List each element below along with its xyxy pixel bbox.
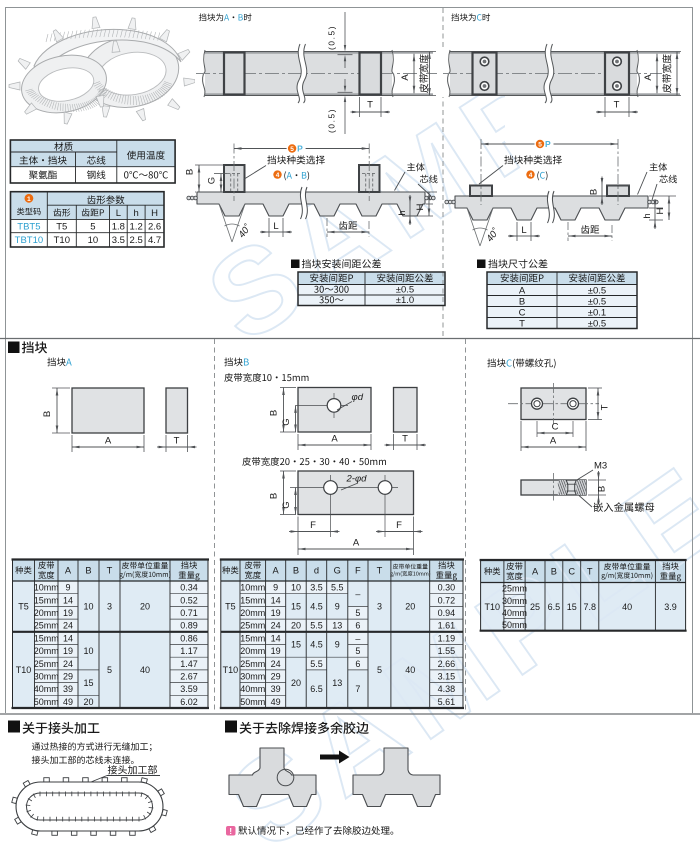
svg-text:G: G	[281, 501, 292, 508]
svg-text:15: 15	[291, 602, 301, 612]
svg-text:4.7: 4.7	[148, 235, 161, 246]
svg-text:6.02: 6.02	[180, 697, 198, 707]
svg-text:6.5: 6.5	[310, 684, 323, 694]
svg-text:G: G	[281, 418, 292, 425]
svg-text:B: B	[185, 169, 196, 175]
svg-text:24: 24	[271, 659, 281, 669]
svg-text:B: B	[85, 566, 91, 576]
svg-text:±1.0: ±1.0	[396, 295, 414, 306]
svg-text:10: 10	[83, 646, 93, 656]
svg-text:F: F	[310, 520, 316, 531]
svg-text:L: L	[273, 221, 278, 232]
svg-text:19: 19	[63, 646, 73, 656]
svg-text:10: 10	[83, 602, 93, 612]
svg-text:H: H	[415, 203, 426, 210]
svg-text:T: T	[377, 566, 383, 576]
svg-text:14: 14	[63, 595, 73, 605]
svg-text:T5: T5	[18, 602, 29, 612]
svg-text:A: A	[273, 566, 280, 576]
svg-text:15: 15	[567, 602, 577, 612]
svg-text:T10: T10	[484, 602, 500, 612]
svg-text:14: 14	[271, 595, 281, 605]
svg-text:10mm: 10mm	[34, 583, 59, 593]
svg-text:25mm: 25mm	[502, 584, 527, 594]
svg-text:±0.5: ±0.5	[588, 296, 606, 307]
svg-text:15mm: 15mm	[34, 595, 59, 605]
svg-text:F: F	[396, 520, 402, 531]
svg-text:L: L	[521, 225, 526, 236]
svg-text:1.55: 1.55	[438, 646, 456, 656]
svg-text:0.89: 0.89	[180, 621, 198, 631]
svg-text:4.5: 4.5	[310, 602, 323, 612]
svg-text:1.47: 1.47	[180, 659, 198, 669]
svg-text:30mm: 30mm	[502, 596, 527, 606]
svg-text:A: A	[400, 74, 411, 81]
svg-text:A: A	[331, 434, 338, 445]
svg-text:6: 6	[355, 659, 360, 669]
svg-text:7: 7	[355, 684, 360, 694]
svg-text:2.5: 2.5	[130, 235, 143, 246]
svg-text:4.5: 4.5	[310, 640, 323, 650]
svg-text:A: A	[532, 567, 539, 577]
svg-text:L: L	[116, 208, 121, 219]
svg-text:0.86: 0.86	[180, 633, 198, 643]
svg-text:7.8: 7.8	[583, 602, 596, 612]
svg-text:1.2: 1.2	[130, 221, 143, 232]
svg-text:39: 39	[63, 684, 73, 694]
svg-text:3.15: 3.15	[438, 671, 456, 681]
svg-text:20: 20	[291, 621, 301, 631]
svg-text:20mm: 20mm	[34, 608, 59, 618]
svg-text:40mm: 40mm	[240, 684, 265, 694]
svg-text:15: 15	[83, 678, 93, 688]
svg-text:5: 5	[90, 221, 95, 232]
svg-text:5: 5	[355, 608, 360, 618]
svg-text:10: 10	[88, 235, 99, 246]
svg-text:T: T	[614, 100, 620, 111]
svg-text:(0.5): (0.5)	[327, 25, 337, 50]
svg-text:1.17: 1.17	[180, 646, 198, 656]
svg-text:C: C	[568, 567, 575, 577]
svg-text:B: B	[589, 189, 600, 195]
svg-text:25mm: 25mm	[240, 621, 265, 631]
svg-text:5.61: 5.61	[438, 697, 456, 707]
svg-text:15mm: 15mm	[34, 633, 59, 643]
svg-text:49: 49	[63, 697, 73, 707]
svg-text:0.94: 0.94	[438, 608, 456, 618]
svg-text:30mm: 30mm	[34, 671, 59, 681]
svg-text:4: 4	[276, 172, 280, 179]
svg-text:40: 40	[622, 602, 632, 612]
svg-text:24: 24	[63, 621, 73, 631]
svg-text:G: G	[207, 177, 218, 184]
svg-text:1.61: 1.61	[438, 621, 456, 631]
svg-text:T10: T10	[223, 665, 239, 675]
svg-text:0.30: 0.30	[438, 583, 456, 593]
svg-text:T: T	[367, 100, 373, 111]
svg-text:15: 15	[291, 640, 301, 650]
svg-text:2.67: 2.67	[180, 671, 198, 681]
svg-text:1.19: 1.19	[438, 633, 456, 643]
svg-text:25mm: 25mm	[34, 659, 59, 669]
svg-text:30mm: 30mm	[240, 671, 265, 681]
svg-text:9: 9	[65, 583, 70, 593]
svg-text:C: C	[552, 422, 559, 433]
svg-text:15mm: 15mm	[240, 595, 265, 605]
svg-text:h: h	[642, 213, 653, 218]
svg-text:±0.5: ±0.5	[396, 285, 414, 296]
svg-text:TBT10: TBT10	[15, 235, 44, 246]
svg-text:0.52: 0.52	[180, 595, 198, 605]
svg-text:40mm: 40mm	[34, 684, 59, 694]
svg-text:H: H	[655, 207, 666, 214]
svg-text:20: 20	[291, 678, 301, 688]
svg-text:h: h	[134, 208, 139, 219]
svg-text:5.5: 5.5	[310, 621, 323, 631]
svg-text:49: 49	[271, 697, 281, 707]
svg-text:B: B	[519, 296, 525, 307]
svg-text:A: A	[643, 74, 654, 81]
svg-text:3: 3	[107, 602, 112, 612]
svg-text:B: B	[551, 567, 557, 577]
svg-text:T: T	[600, 404, 611, 410]
svg-text:T10: T10	[54, 235, 70, 246]
svg-text:C: C	[519, 307, 526, 318]
svg-text:9: 9	[335, 602, 340, 612]
svg-text:3.59: 3.59	[180, 684, 198, 694]
svg-text:3: 3	[377, 602, 382, 612]
svg-text:T: T	[519, 318, 525, 329]
svg-text:T: T	[174, 436, 180, 447]
svg-text:P: P	[297, 144, 303, 154]
svg-text:9: 9	[335, 640, 340, 650]
svg-text:h: h	[397, 210, 408, 215]
svg-text:T: T	[587, 567, 593, 577]
svg-text:5.5: 5.5	[310, 659, 323, 669]
svg-text:d: d	[314, 566, 319, 576]
svg-text:A: A	[550, 436, 557, 447]
svg-text:39: 39	[271, 684, 281, 694]
svg-text:F: F	[355, 566, 361, 576]
svg-text:9: 9	[273, 583, 278, 593]
svg-text:0.71: 0.71	[180, 608, 198, 618]
svg-text:–: –	[355, 589, 360, 599]
svg-text:20: 20	[140, 602, 150, 612]
svg-text:3.5: 3.5	[112, 235, 125, 246]
svg-text:B: B	[269, 410, 280, 416]
svg-text:1: 1	[27, 196, 31, 203]
svg-text:M3: M3	[594, 461, 607, 472]
svg-text:4: 4	[529, 172, 533, 179]
svg-text:±0.5: ±0.5	[588, 285, 606, 296]
svg-text:20mm: 20mm	[240, 646, 265, 656]
svg-text:T5: T5	[56, 221, 67, 232]
svg-text:5: 5	[107, 665, 112, 675]
svg-text:5: 5	[290, 146, 294, 153]
svg-text:B: B	[597, 486, 608, 492]
svg-text:25mm: 25mm	[240, 659, 265, 669]
svg-text:24: 24	[63, 659, 73, 669]
svg-text:3.5: 3.5	[310, 583, 323, 593]
svg-text:2.6: 2.6	[148, 221, 161, 232]
svg-text:T: T	[107, 566, 113, 576]
svg-text:T5: T5	[225, 602, 236, 612]
svg-text:6: 6	[355, 621, 360, 631]
svg-text:5: 5	[355, 646, 360, 656]
svg-text:29: 29	[63, 671, 73, 681]
svg-text:A: A	[65, 566, 72, 576]
svg-text:6.5: 6.5	[548, 602, 561, 612]
svg-text:1.8: 1.8	[112, 221, 125, 232]
svg-text:0.72: 0.72	[438, 595, 456, 605]
svg-text:T: T	[402, 434, 408, 445]
svg-text:A: A	[353, 538, 360, 549]
svg-text:5: 5	[538, 141, 542, 148]
svg-text:φd: φd	[352, 392, 364, 403]
svg-text:10: 10	[291, 583, 301, 593]
svg-text:40mm: 40mm	[502, 608, 527, 618]
svg-text:19: 19	[63, 608, 73, 618]
svg-text:–: –	[355, 633, 360, 643]
svg-text:2-φd: 2-φd	[346, 474, 368, 485]
svg-text:20mm: 20mm	[240, 608, 265, 618]
svg-text:5.5: 5.5	[331, 583, 344, 593]
svg-text:14: 14	[271, 633, 281, 643]
svg-text:G: G	[334, 566, 341, 576]
svg-text:15mm: 15mm	[240, 633, 265, 643]
svg-text:(0.5): (0.5)	[327, 108, 337, 133]
svg-text:40: 40	[140, 665, 150, 675]
svg-text:50mm: 50mm	[502, 620, 527, 630]
svg-text:29: 29	[271, 671, 281, 681]
svg-text:24: 24	[271, 621, 281, 631]
svg-text:50mm: 50mm	[34, 697, 59, 707]
svg-text:!: !	[229, 826, 232, 836]
svg-text:B: B	[269, 493, 280, 499]
svg-text:40: 40	[405, 665, 415, 675]
svg-text:4.38: 4.38	[438, 684, 456, 694]
svg-text:±0.1: ±0.1	[588, 307, 606, 318]
svg-text:19: 19	[271, 646, 281, 656]
svg-text:14: 14	[63, 633, 73, 643]
svg-text:20mm: 20mm	[34, 646, 59, 656]
svg-text:A: A	[105, 436, 112, 447]
svg-text:5: 5	[377, 665, 382, 675]
svg-text:±0.5: ±0.5	[588, 318, 606, 329]
svg-text:25: 25	[530, 602, 540, 612]
svg-text:0.34: 0.34	[180, 583, 198, 593]
svg-text:20: 20	[405, 602, 415, 612]
svg-text:10mm: 10mm	[240, 583, 265, 593]
svg-text:B: B	[293, 566, 299, 576]
svg-text:2.66: 2.66	[438, 659, 456, 669]
svg-text:TBT5: TBT5	[17, 221, 40, 232]
svg-text:13: 13	[332, 621, 342, 631]
svg-text:25mm: 25mm	[34, 621, 59, 631]
svg-text:20: 20	[83, 697, 93, 707]
svg-text:A: A	[519, 285, 526, 296]
svg-text:3.9: 3.9	[664, 602, 677, 612]
svg-text:T10: T10	[16, 665, 32, 675]
svg-text:H: H	[151, 208, 158, 219]
svg-text:19: 19	[271, 608, 281, 618]
svg-text:P: P	[545, 139, 551, 149]
svg-text:50mm: 50mm	[240, 697, 265, 707]
svg-text:B: B	[42, 411, 53, 417]
svg-text:13: 13	[332, 678, 342, 688]
